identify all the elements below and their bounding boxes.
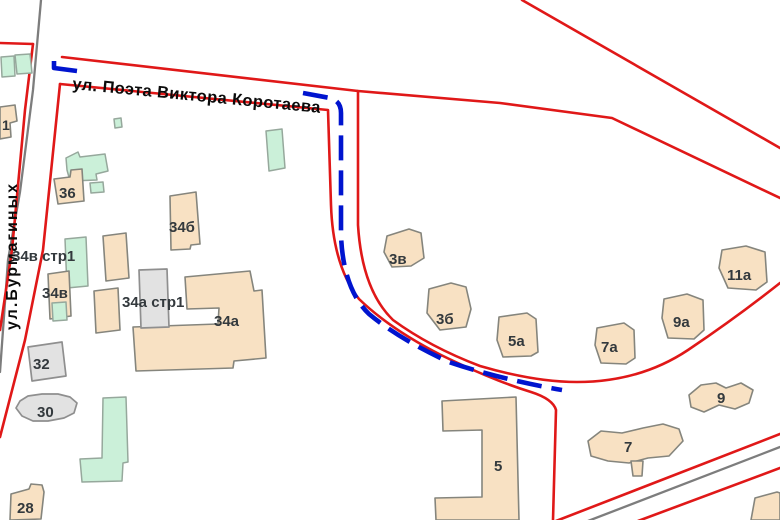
label-building-34v: 34в xyxy=(42,285,68,302)
map-svg: ул. Поэта Виктора Коротаева ул.Бурмагины… xyxy=(0,0,780,520)
building-green-f xyxy=(266,129,285,171)
building-green-l xyxy=(80,397,128,482)
building-7-annex xyxy=(631,461,643,476)
building-34v-green-tail xyxy=(52,302,67,321)
building-5 xyxy=(435,397,519,520)
buildings xyxy=(0,54,780,520)
label-building-9: 9 xyxy=(717,390,725,407)
label-building-9a: 9а xyxy=(673,314,690,331)
label-building-7: 7 xyxy=(624,439,632,456)
label-building-32: 32 xyxy=(33,356,50,373)
building-green-a xyxy=(1,56,15,77)
label-building-3v: 3в xyxy=(389,251,407,268)
label-building-11a: 11а xyxy=(727,267,752,284)
label-building-7a: 7а xyxy=(601,339,618,356)
label-building-30: 30 xyxy=(37,404,54,421)
label-building-34b: 34б xyxy=(169,219,195,236)
building-green-e xyxy=(114,118,122,128)
building-bottom-right-partial xyxy=(751,492,780,520)
building-green-b xyxy=(15,54,32,74)
map-canvas[interactable]: ул. Поэта Виктора Коротаева ул.Бурмагины… xyxy=(0,0,780,520)
label-building-34a: 34а xyxy=(214,313,240,330)
building-mid-1 xyxy=(103,233,129,281)
west-parcel-connector xyxy=(0,43,33,44)
label-building-5: 5 xyxy=(494,458,502,475)
parcel-line-top-right xyxy=(522,0,780,148)
label-building-28: 28 xyxy=(17,500,34,517)
label-building-34a-str1: 34а стр1 xyxy=(122,294,184,311)
building-7 xyxy=(588,424,683,463)
label-building-1: 1 xyxy=(2,117,10,133)
label-building-36: 36 xyxy=(59,185,76,202)
label-building-34v-str1: 34в стр1 xyxy=(12,248,75,265)
korotaeva-north-line xyxy=(62,57,780,198)
route-start-dash xyxy=(54,61,77,71)
building-green-d xyxy=(90,182,104,193)
label-building-3b: 3б xyxy=(436,311,454,328)
label-building-5a: 5а xyxy=(508,333,525,350)
building-mid-2 xyxy=(94,288,120,333)
